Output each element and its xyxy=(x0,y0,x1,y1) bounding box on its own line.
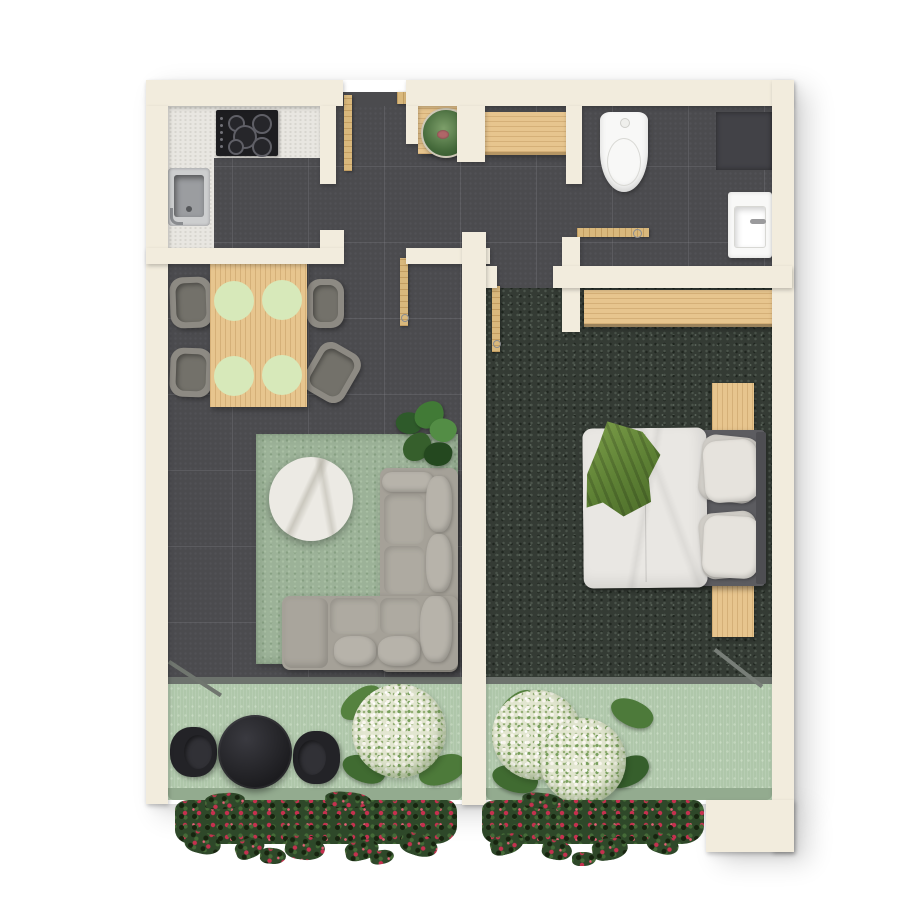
wall-top-right xyxy=(406,80,792,106)
wall-bedroom-top-b xyxy=(553,266,792,288)
kitchen-sink xyxy=(168,168,210,226)
wall-left xyxy=(146,106,168,804)
placemat xyxy=(214,281,254,321)
flower-fringe xyxy=(369,848,395,865)
burner-ring xyxy=(252,137,272,157)
washbasin-faucet xyxy=(750,219,766,224)
washbasin xyxy=(728,192,772,258)
entrance-door xyxy=(344,95,352,171)
floorplan-canvas xyxy=(0,0,900,900)
red-window-box-left xyxy=(175,800,457,844)
sofa-seat-cushion xyxy=(384,546,424,594)
cooktop xyxy=(216,110,278,156)
wall-niche-pier xyxy=(457,106,485,162)
cooktop-knob xyxy=(220,124,223,127)
wall-corner-bottom-right xyxy=(706,800,794,852)
sofa-chaise xyxy=(284,598,328,668)
bathroom-door xyxy=(577,228,649,237)
wall-top-left xyxy=(146,80,343,106)
wall-right xyxy=(772,80,794,852)
bed-pillow xyxy=(702,438,760,504)
wall-living-bedroom xyxy=(462,232,486,805)
chair-seat xyxy=(175,353,206,391)
sink-drain xyxy=(186,206,192,212)
door-handle xyxy=(401,314,409,322)
shower-area xyxy=(716,112,772,170)
bedroom-door xyxy=(492,286,500,352)
white-flowering-shrub xyxy=(540,718,626,804)
headboard xyxy=(756,432,766,584)
flower-fringe xyxy=(204,791,245,810)
succulent-bloom xyxy=(437,130,449,139)
flower-fringe xyxy=(183,828,223,859)
chair-seat xyxy=(313,285,338,322)
built-in-wardrobe xyxy=(584,290,772,327)
sofa-seat-cushion xyxy=(380,598,420,634)
living-room-door xyxy=(400,258,408,326)
wall-kitchen-pier xyxy=(320,230,344,248)
sofa-seat-cushion xyxy=(384,494,424,544)
bistro-table xyxy=(218,715,292,789)
red-window-box-right xyxy=(482,800,704,844)
door-handle xyxy=(633,229,642,238)
bed-pillow xyxy=(701,515,760,580)
sofa-seat-cushion xyxy=(330,598,378,634)
washbasin-bowl xyxy=(734,206,766,248)
toilet-seat-line xyxy=(607,138,641,186)
flower-fringe xyxy=(572,852,596,866)
balcony-threshold-right xyxy=(486,677,772,684)
double-bed xyxy=(583,424,768,590)
sofa-corner-pillow xyxy=(420,596,452,662)
cooktop-knob xyxy=(220,117,223,120)
sofa-back-pillow xyxy=(426,476,452,532)
bistro-chair xyxy=(293,731,340,784)
nightstand xyxy=(712,585,754,637)
flower-fringe xyxy=(398,829,441,862)
dining-chair xyxy=(169,347,213,397)
burner-ring xyxy=(228,139,244,155)
cooktop-knob xyxy=(220,145,223,148)
wall-entry-pier xyxy=(406,106,418,144)
corner-sofa xyxy=(280,466,458,672)
toilet xyxy=(600,112,648,192)
wall-bathroom-left xyxy=(566,106,582,184)
sofa-back-pillow xyxy=(378,636,420,666)
placemat xyxy=(262,355,302,395)
placemat xyxy=(214,356,254,396)
door-handle xyxy=(493,340,501,348)
hall-bench xyxy=(485,112,566,155)
sink-faucet xyxy=(170,208,183,225)
flower-fringe xyxy=(540,837,574,863)
flower-fringe xyxy=(488,830,526,858)
monstera-plant xyxy=(396,402,458,470)
sofa-back-pillow xyxy=(426,534,452,592)
placemat xyxy=(262,280,302,320)
dining-table xyxy=(210,263,307,407)
bistro-chair xyxy=(170,727,217,777)
cooktop-knob xyxy=(220,131,223,134)
sofa-back-pillow xyxy=(334,636,376,666)
dining-chair xyxy=(307,279,344,328)
flower-fringe xyxy=(284,833,327,862)
dining-chair xyxy=(169,276,213,328)
flower-fringe xyxy=(259,847,286,865)
cooktop-knob xyxy=(220,138,223,141)
toilet-flush-button xyxy=(620,118,630,128)
wall-kitchen-right xyxy=(320,106,336,184)
bistro-chair-seat xyxy=(184,735,212,769)
white-flowering-shrub xyxy=(352,684,446,778)
balcony-threshold-left xyxy=(168,677,462,684)
flower-fringe xyxy=(591,836,630,863)
bistro-chair-seat xyxy=(298,740,326,775)
wall-kitchen-bottom xyxy=(146,248,344,264)
chair-seat xyxy=(175,282,206,322)
flower-fringe xyxy=(645,829,682,859)
